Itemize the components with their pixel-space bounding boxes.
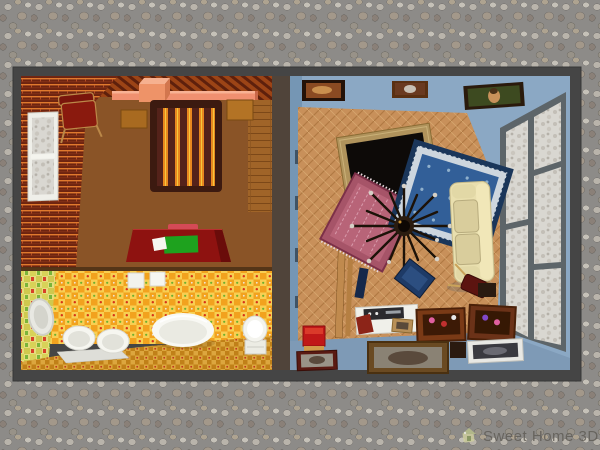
wooden-crate-1[interactable] — [416, 308, 465, 342]
toilet[interactable] — [243, 316, 267, 354]
basin-1[interactable] — [63, 326, 95, 350]
leaning-painting-2[interactable] — [368, 342, 448, 373]
towel-2[interactable] — [150, 272, 165, 286]
living-room — [290, 76, 570, 373]
sweet-home-3d-logo-icon — [460, 427, 478, 445]
bedroom-window[interactable] — [28, 112, 58, 201]
green-desk-pad — [164, 235, 199, 253]
divider-wall — [272, 76, 290, 370]
bathroom-back-wall — [21, 271, 272, 344]
mona-lisa-painting[interactable] — [463, 82, 525, 110]
watermark: Sweet Home 3D — [460, 427, 599, 445]
leaning-painting-4[interactable] — [467, 339, 523, 364]
small-dark-box[interactable] — [478, 283, 496, 297]
painting-1[interactable] — [302, 80, 345, 101]
nightstand-right[interactable] — [227, 100, 253, 120]
double-bed[interactable] — [150, 100, 222, 192]
painting-2[interactable] — [392, 81, 428, 98]
paper-sheet — [152, 237, 167, 251]
floor-plan-render — [0, 0, 600, 450]
towel-1[interactable] — [128, 273, 144, 288]
stereo-tray[interactable] — [355, 304, 418, 336]
leaning-painting-3[interactable] — [450, 342, 466, 358]
writing-desk[interactable] — [126, 224, 231, 262]
bedroom — [21, 76, 274, 272]
wall-shelf[interactable] — [112, 91, 258, 100]
bathtub[interactable] — [152, 313, 215, 349]
basin-2[interactable] — [97, 329, 129, 353]
storage-box[interactable] — [139, 78, 170, 102]
nightstand-left[interactable] — [121, 110, 147, 128]
red-stool[interactable] — [303, 326, 325, 351]
wooden-crate-2[interactable] — [468, 305, 516, 341]
leaning-painting-1[interactable] — [297, 350, 338, 370]
watermark-text: Sweet Home 3D — [483, 428, 599, 445]
render-canvas[interactable]: Sweet Home 3D — [0, 0, 600, 450]
